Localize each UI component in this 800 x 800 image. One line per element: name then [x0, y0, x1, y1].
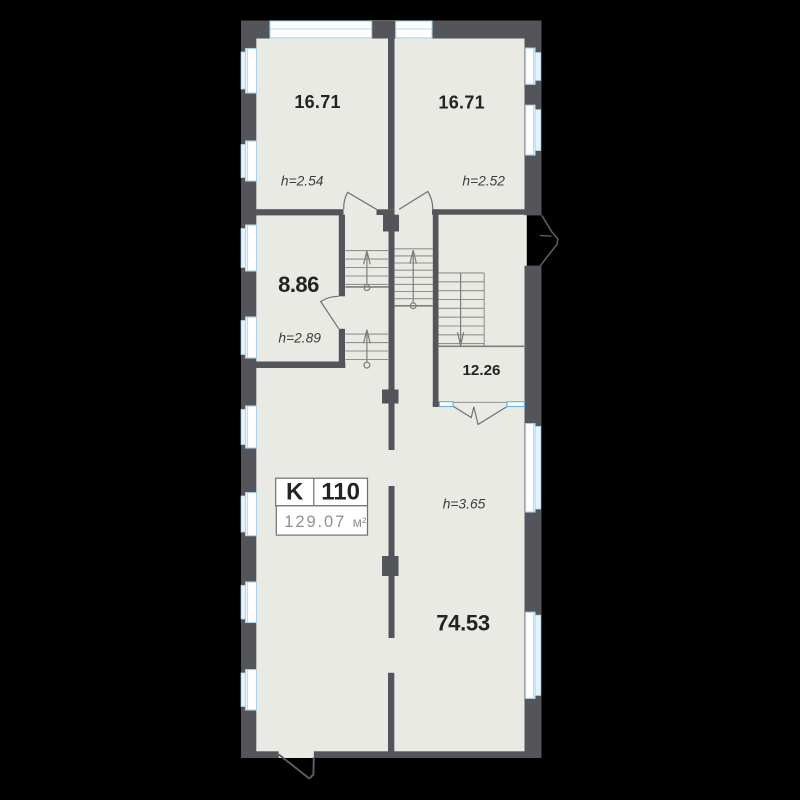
svg-text:129.07 м²: 129.07 м² — [284, 513, 367, 531]
svg-text:110: 110 — [321, 479, 360, 506]
svg-text:h=2.89: h=2.89 — [278, 330, 321, 345]
svg-text:74.53: 74.53 — [436, 610, 490, 635]
svg-text:16.71: 16.71 — [294, 92, 341, 112]
svg-text:12.26: 12.26 — [462, 362, 500, 379]
svg-text:8.86: 8.86 — [278, 272, 319, 297]
svg-text:h=2.52: h=2.52 — [462, 173, 505, 188]
svg-text:h=3.65: h=3.65 — [443, 496, 486, 511]
svg-text:h=2.54: h=2.54 — [281, 173, 324, 188]
svg-text:K: K — [286, 479, 304, 506]
svg-text:16.71: 16.71 — [438, 92, 485, 112]
